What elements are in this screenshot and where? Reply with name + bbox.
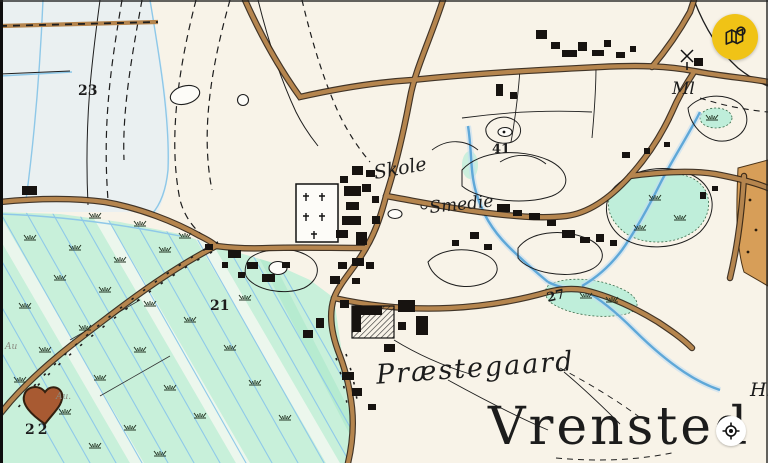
label-mill: Ml: [671, 79, 695, 99]
pond-small: [238, 95, 249, 106]
map-icon: [722, 24, 748, 50]
label-au-1: Au: [4, 342, 17, 352]
pale-bog-field: [0, 0, 171, 212]
locate-button[interactable]: [716, 416, 746, 446]
label-au-2: Au.: [55, 392, 71, 402]
label-hill-partial: Hl: [749, 379, 768, 401]
label-21: 21: [210, 298, 229, 314]
label-41: 41: [492, 142, 510, 157]
layers-button[interactable]: [712, 14, 758, 60]
historical-map[interactable]: Skole Smedie Præstegaard Vrensted Ml Hl …: [0, 0, 768, 463]
pond-village-2: [388, 210, 402, 219]
label-23: 23: [78, 83, 97, 99]
label-22: 22: [25, 422, 50, 438]
label-vrensted: Vrensted: [487, 397, 750, 457]
crosshair-icon: [721, 421, 741, 441]
map-viewer: Skole Smedie Præstegaard Vrensted Ml Hl …: [0, 0, 768, 463]
